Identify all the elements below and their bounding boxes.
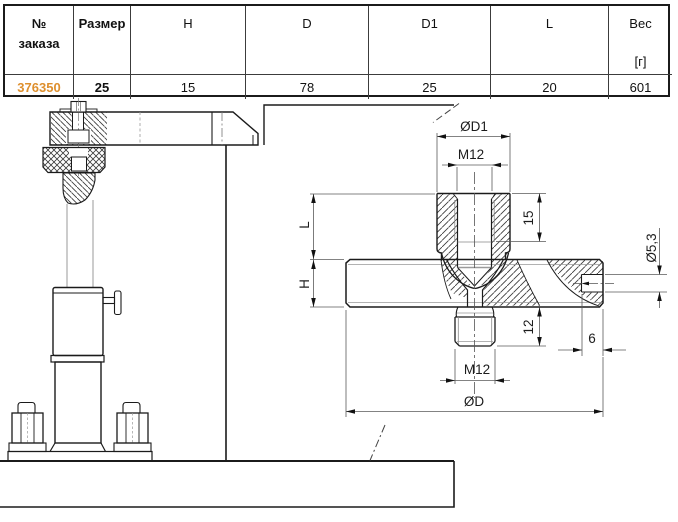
col-header-d: D	[246, 6, 369, 75]
col-header-d1: D1	[369, 6, 491, 75]
dim-label-m12-bottom: M12	[464, 362, 490, 377]
cell-l: 20	[491, 75, 609, 99]
cell-order-number[interactable]: 376350	[5, 75, 74, 99]
dim-label-m12-top: M12	[458, 147, 484, 162]
col-header-size: Размер	[74, 6, 131, 75]
col-header-l: L	[491, 6, 609, 75]
dim-label-h: H	[297, 279, 312, 289]
dim-label-d: ØD	[464, 394, 485, 409]
cell-d: 78	[246, 75, 369, 99]
cell-h: 15	[131, 75, 246, 99]
dim-label-dia53: Ø5,3	[644, 233, 659, 262]
spec-table: № заказа Размер H D D1 L Вес [г] 376350 …	[3, 4, 670, 97]
cell-size: 25	[74, 75, 131, 99]
dim-label-d1: ØD1	[460, 119, 488, 134]
col-header-order-line2: заказа	[19, 34, 60, 54]
dim-label-l: L	[297, 221, 312, 229]
col-header-h: H	[131, 6, 246, 75]
col-header-order: № заказа	[5, 6, 74, 75]
dim-label-15: 15	[521, 210, 536, 225]
col-header-order-line1: №	[32, 14, 47, 34]
dim-label-12: 12	[521, 319, 536, 334]
dim-label-6: 6	[588, 331, 596, 346]
catalog-page: ØD1 M12 15 L H Ø5,3 12 M12 6 ØD № заказа…	[0, 0, 678, 522]
col-header-weight-unit: [г]	[635, 52, 647, 72]
cell-d1: 25	[369, 75, 491, 99]
col-header-weight: Вес [г]	[609, 6, 672, 75]
cell-weight: 601	[609, 75, 672, 99]
